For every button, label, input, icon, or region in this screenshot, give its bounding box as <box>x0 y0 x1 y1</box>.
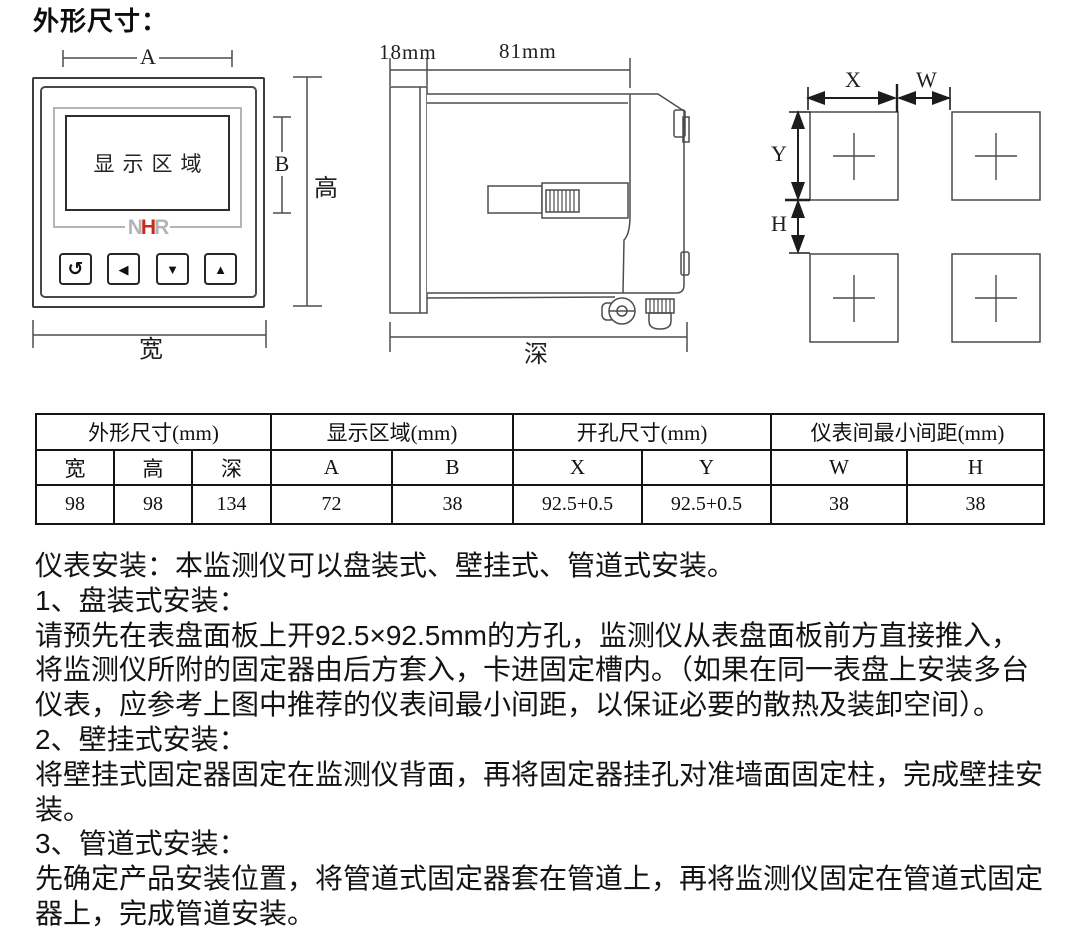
dim-label-depth: 深 <box>524 342 548 368</box>
install-text-line: 装。 <box>35 793 1055 828</box>
table-group-header-row: 外形尺寸(mm) 显示区域(mm) 开孔尺寸(mm) 仪表间最小间距(mm) <box>36 414 1044 450</box>
logo-letter-r: R <box>154 216 167 239</box>
nhr-logo-letters: NHR <box>125 217 171 239</box>
dim-label-81mm: 81mm <box>499 40 557 63</box>
group-header-spacing: 仪表间最小间距(mm) <box>771 414 1044 450</box>
table-header-cell: 高 <box>114 450 192 485</box>
install-text-line: 器上，完成管道安装。 <box>35 897 1055 932</box>
dim-label-b: B <box>271 152 293 176</box>
table-value-cell: 92.5+0.5 <box>513 485 642 524</box>
device-rotate-button: ↺ <box>59 253 92 285</box>
table-header-cell: X <box>513 450 642 485</box>
table-header-cell: W <box>771 450 907 485</box>
dimensions-table: 外形尺寸(mm) 显示区域(mm) 开孔尺寸(mm) 仪表间最小间距(mm) 宽… <box>35 413 1045 525</box>
table-header-cell: 深 <box>192 450 271 485</box>
install-text-line: 3、管道式安装： <box>35 827 1055 862</box>
group-header-outline: 外形尺寸(mm) <box>36 414 271 450</box>
left-arrow-icon: ◀ <box>119 263 129 276</box>
table-header-cell: A <box>271 450 392 485</box>
table-value-cell: 98 <box>114 485 192 524</box>
group-header-cutout: 开孔尺寸(mm) <box>513 414 771 450</box>
up-arrow-icon: ▲ <box>214 263 227 276</box>
cutout-layout-drawing <box>810 112 1040 342</box>
device-left-button: ◀ <box>107 253 140 285</box>
cutout-center-crosses <box>833 133 1017 322</box>
front-view-display-area: 显示区域 <box>65 115 230 211</box>
install-text-line: 将监测仪所附的固定器由后方套入，卡进固定槽内。（如果在同一表盘上安装多台 <box>35 653 1055 688</box>
install-text-line: 请预先在表盘面板上开92.5×92.5mm的方孔，监测仪从表盘面板前方直接推入， <box>35 619 1055 654</box>
cutout-dimension-arrowheads <box>791 91 951 254</box>
table-value-cell: 92.5+0.5 <box>642 485 771 524</box>
install-text-line: 2、壁挂式安装： <box>35 723 1055 758</box>
install-text-line: 1、盘装式安装： <box>35 584 1055 619</box>
table-value-cell: 72 <box>271 485 392 524</box>
table-value-cell: 38 <box>771 485 907 524</box>
table-header-row: 宽 高 深 A B X Y W H <box>36 450 1044 485</box>
dim-label-width: 宽 <box>139 337 163 363</box>
rotate-icon: ↺ <box>68 260 84 279</box>
install-text-line: 将壁挂式固定器固定在监测仪背面，再将固定器挂孔对准墙面固定柱，完成壁挂安 <box>35 758 1055 793</box>
table-value-cell: 38 <box>907 485 1044 524</box>
dim-label-18mm: 18mm <box>379 41 437 64</box>
table-header-cell: Y <box>642 450 771 485</box>
installation-instructions: 仪表安装：本监测仪可以盘装式、壁挂式、管道式安装。 1、盘装式安装： 请预先在表… <box>35 549 1055 932</box>
side-view-drawing <box>390 58 689 352</box>
device-up-button: ▲ <box>204 253 237 285</box>
dim-label-height: 高 <box>314 176 338 202</box>
dim-label-h: H <box>771 212 787 236</box>
device-down-button: ▼ <box>156 253 189 285</box>
down-arrow-icon: ▼ <box>166 263 179 276</box>
table-header-cell: 宽 <box>36 450 114 485</box>
dim-label-y: Y <box>771 142 787 166</box>
table-header-cell: B <box>392 450 513 485</box>
display-area-label: 显示区域 <box>86 148 210 178</box>
brand-logo: NHR <box>53 216 242 240</box>
logo-letter-h: H <box>141 216 154 239</box>
table-header-cell: H <box>907 450 1044 485</box>
table-value-cell: 38 <box>392 485 513 524</box>
table-value-row: 98 98 134 72 38 92.5+0.5 92.5+0.5 38 38 <box>36 485 1044 524</box>
table-value-cell: 98 <box>36 485 114 524</box>
table-value-cell: 134 <box>192 485 271 524</box>
install-text-line: 仪表安装：本监测仪可以盘装式、壁挂式、管道式安装。 <box>35 549 1055 584</box>
install-text-line: 先确定产品安装位置，将管道式固定器套在管道上，再将监测仪固定在管道式固定 <box>35 862 1055 897</box>
dim-label-a: A <box>137 45 159 69</box>
dim-label-w: W <box>916 68 937 92</box>
group-header-display: 显示区域(mm) <box>271 414 513 450</box>
logo-letter-n: N <box>128 216 141 239</box>
manual-page: 外形尺寸： <box>0 0 1080 942</box>
install-text-line: 仪表，应参考上图中推荐的仪表间最小间距，以保证必要的散热及装卸空间）。 <box>35 688 1055 723</box>
dim-label-x: X <box>845 68 861 92</box>
